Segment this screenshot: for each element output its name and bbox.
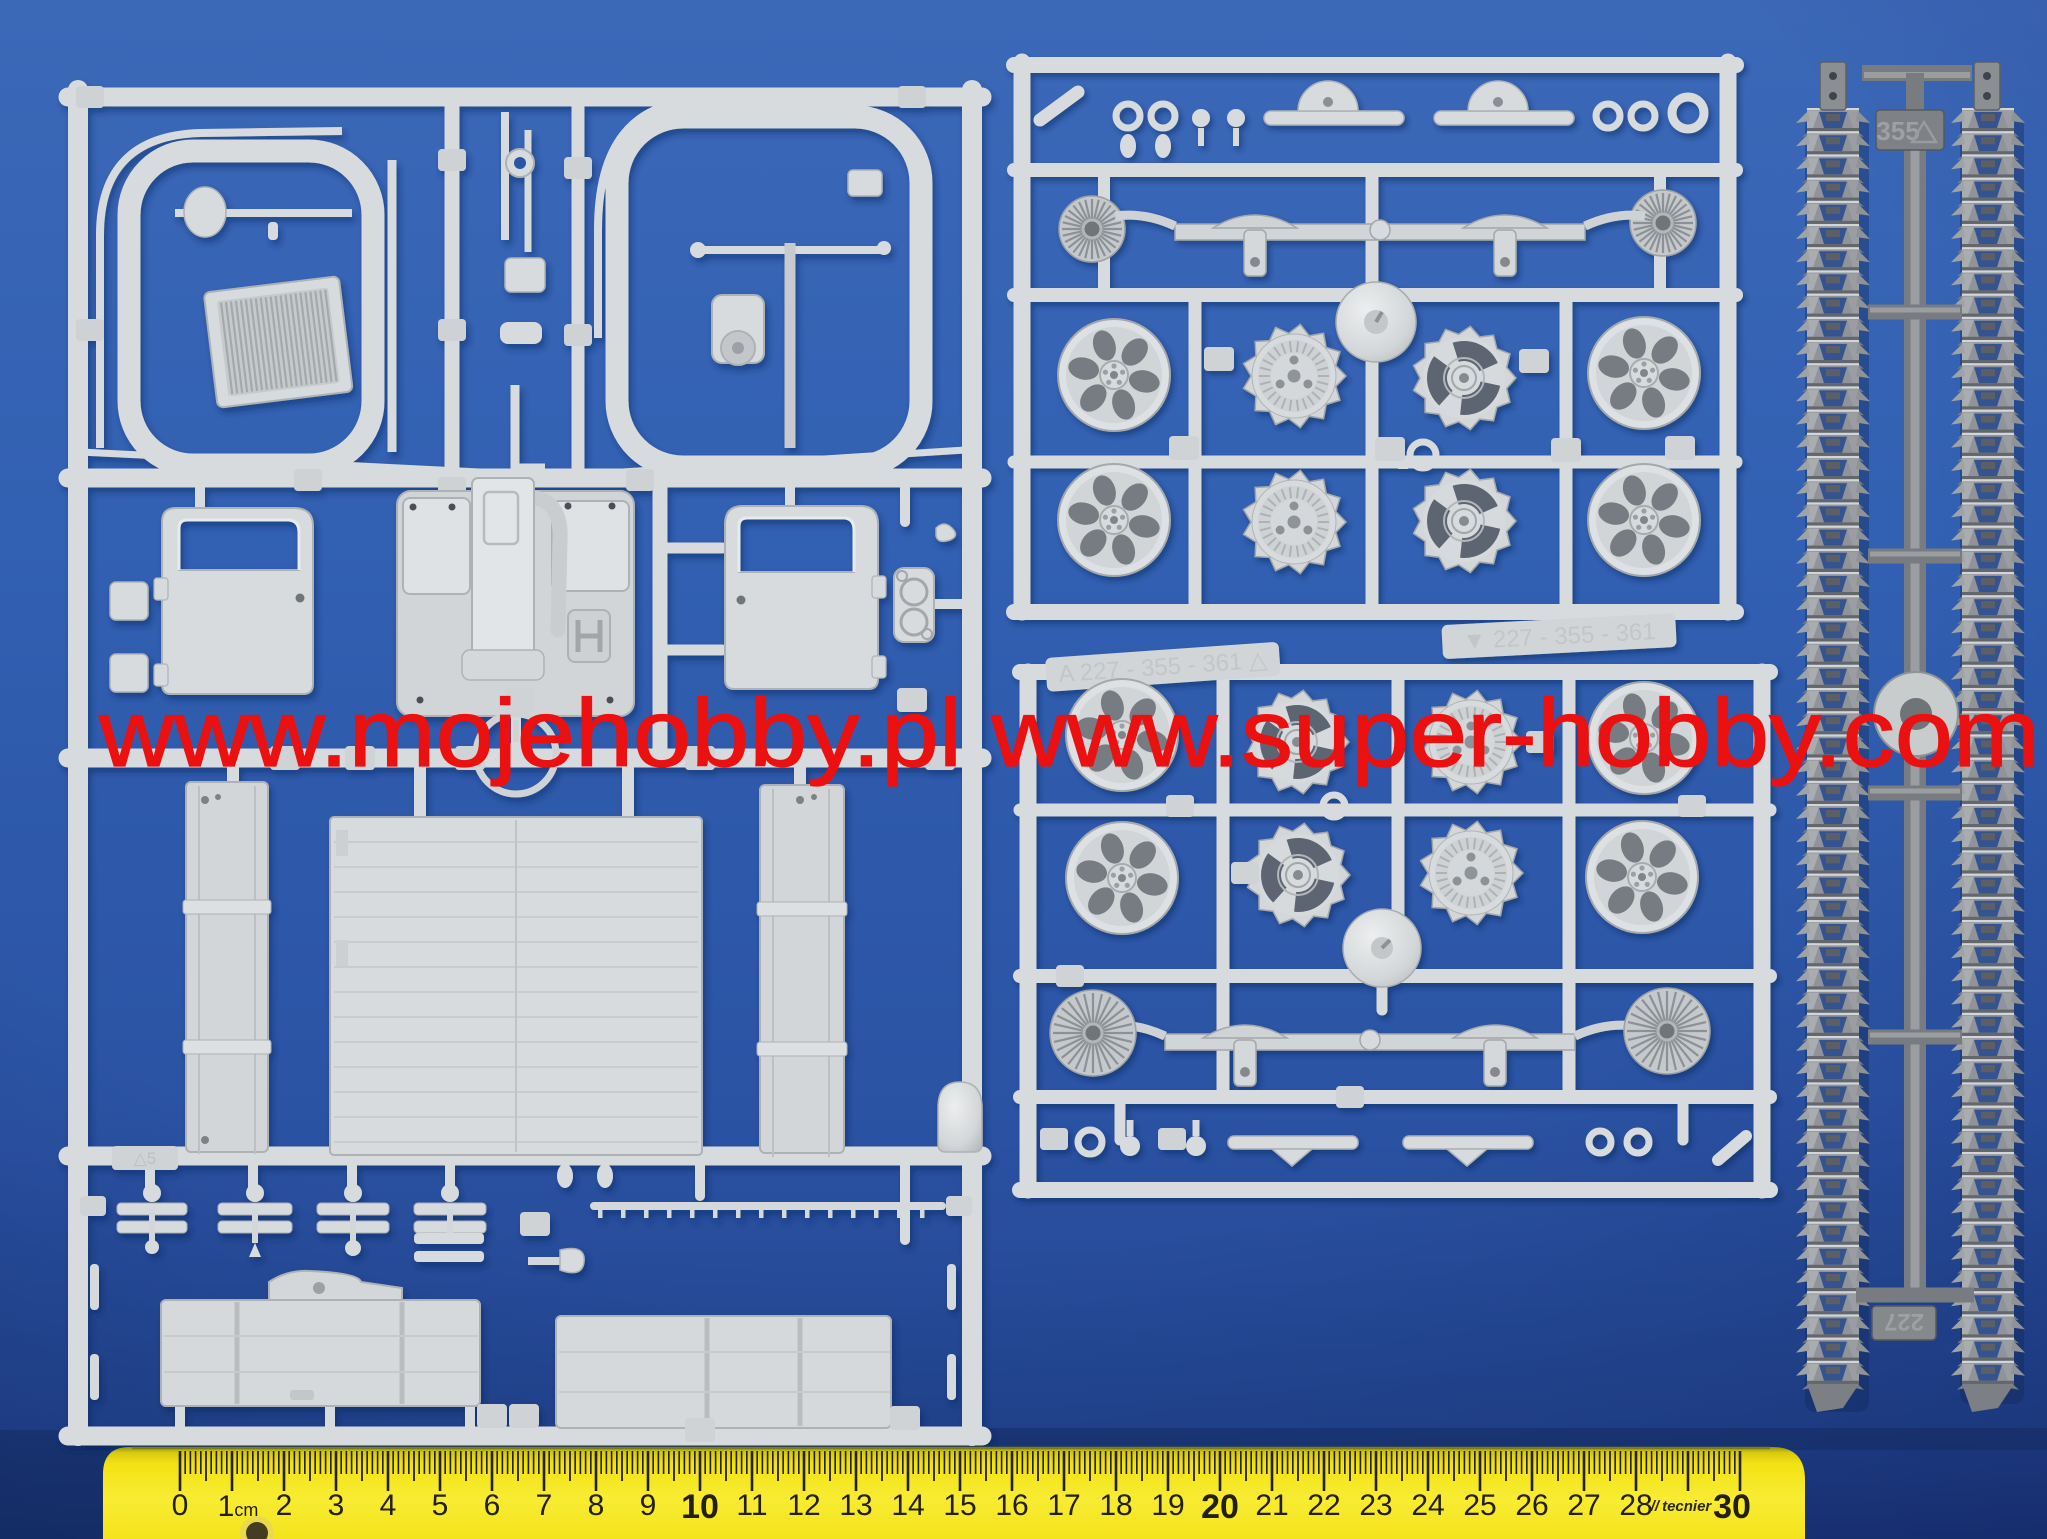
svg-text:2: 2	[276, 1489, 293, 1522]
svg-text:18: 18	[1099, 1489, 1132, 1522]
svg-text:3: 3	[328, 1489, 345, 1522]
svg-text:22: 22	[1307, 1489, 1340, 1522]
svg-text:14: 14	[891, 1489, 924, 1522]
svg-text:www.mojehobby.pl www.super-hob: www.mojehobby.pl www.super-hobby.com	[98, 680, 2040, 787]
svg-text:8: 8	[588, 1489, 605, 1522]
svg-text:11: 11	[736, 1489, 767, 1522]
svg-text:24: 24	[1411, 1489, 1444, 1522]
svg-text:10: 10	[681, 1488, 719, 1526]
svg-text:0: 0	[172, 1489, 189, 1522]
svg-text:15: 15	[943, 1489, 976, 1522]
svg-text:6: 6	[484, 1489, 501, 1522]
svg-text:// tecnier: // tecnier	[1650, 1498, 1713, 1515]
svg-text:17: 17	[1047, 1489, 1080, 1522]
svg-text:23: 23	[1359, 1489, 1392, 1522]
svg-text:△5: △5	[134, 1149, 157, 1168]
svg-text:16: 16	[995, 1489, 1028, 1522]
svg-text:9: 9	[640, 1489, 657, 1522]
svg-text:19: 19	[1151, 1489, 1184, 1522]
svg-text:4: 4	[380, 1489, 397, 1522]
svg-text:25: 25	[1463, 1489, 1496, 1522]
svg-text:12: 12	[787, 1489, 820, 1522]
svg-text:227: 227	[1884, 1308, 1924, 1335]
svg-text:20: 20	[1201, 1488, 1239, 1526]
svg-text:30: 30	[1713, 1488, 1751, 1526]
svg-text:27: 27	[1567, 1489, 1600, 1522]
svg-text:21: 21	[1255, 1489, 1288, 1522]
svg-text:28: 28	[1619, 1489, 1652, 1522]
svg-text:13: 13	[839, 1489, 872, 1522]
svg-text:7: 7	[536, 1489, 553, 1522]
svg-text:26: 26	[1515, 1489, 1548, 1522]
svg-text:5: 5	[432, 1489, 449, 1522]
